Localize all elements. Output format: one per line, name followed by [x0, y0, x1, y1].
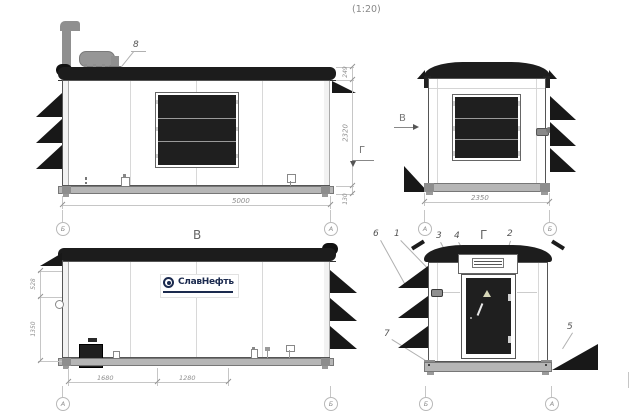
base-bolt — [545, 364, 547, 366]
callout-5: 5 — [567, 323, 573, 332]
door-hinge — [508, 336, 511, 343]
callout-7: 7 — [384, 330, 390, 339]
grille-slat — [474, 264, 502, 265]
stairs-wedge — [552, 344, 598, 370]
callout-5-leader — [562, 332, 573, 349]
door-hinge — [508, 294, 511, 301]
base-tab — [427, 372, 434, 375]
grid-line — [551, 386, 552, 397]
grille-slat — [474, 261, 502, 262]
frame-line — [437, 263, 438, 361]
louver-hood — [398, 266, 428, 288]
louver-hood — [398, 296, 428, 318]
base-skid — [424, 362, 552, 372]
grid-bubble: Б — [419, 397, 433, 411]
callout-6-leader — [380, 240, 406, 286]
clipped-dim-line — [628, 372, 629, 388]
callout-3: 3 — [436, 232, 442, 241]
transom-grille — [472, 258, 504, 268]
door-lock-dot — [470, 317, 472, 319]
callout-6: 6 — [373, 230, 379, 239]
visor-edge — [411, 240, 425, 251]
view-end-elevation-g: Г 6 1 3 4 2 7 5 — [0, 0, 630, 420]
base-tab — [542, 372, 549, 375]
base-bolt — [428, 364, 430, 366]
wall-seam — [517, 292, 537, 293]
frame-line — [538, 263, 539, 361]
callout-1: 1 — [394, 230, 400, 239]
door-warning-triangle-icon — [483, 290, 491, 297]
drawing-sheet: (1:20) 8 — [0, 0, 630, 420]
wall-lamp-box — [431, 289, 443, 297]
grid-line — [425, 386, 426, 397]
callout-4: 4 — [454, 232, 460, 241]
visor-edge — [551, 240, 565, 251]
louver-hood — [398, 326, 428, 348]
callout-2: 2 — [507, 230, 513, 239]
grid-bubble: А — [545, 397, 559, 411]
view-title-g: Г — [480, 229, 487, 241]
